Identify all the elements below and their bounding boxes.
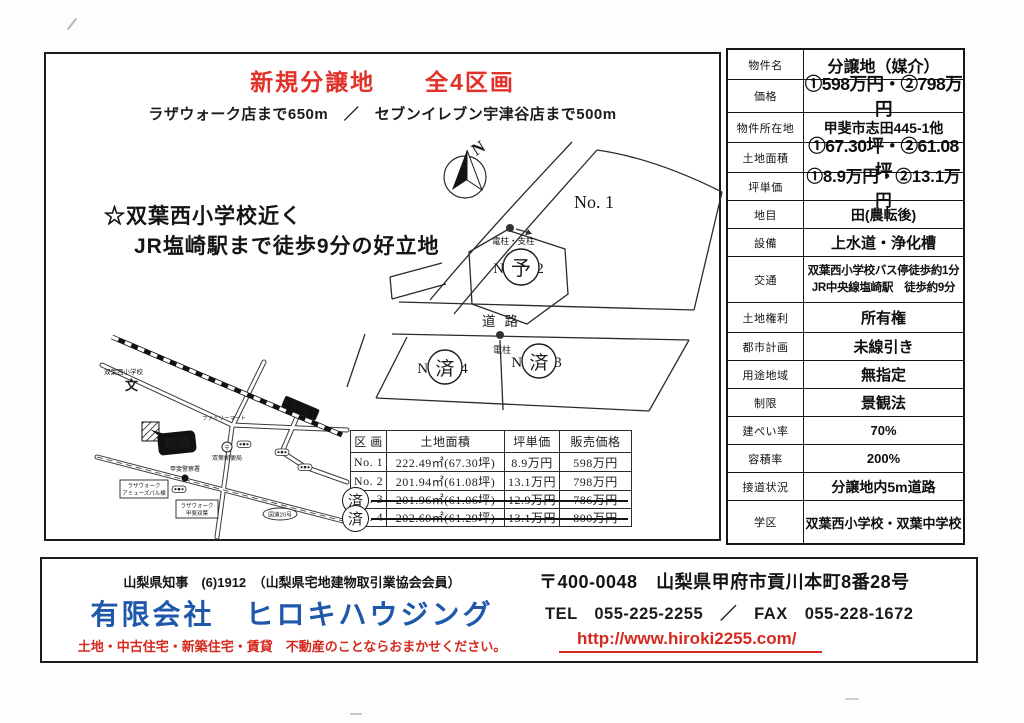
price-table-row-sold: 済 No. 4 202.60㎡(61.29坪) 13.1万円 800万円 [351,508,631,526]
spec-label: 設備 [728,229,804,256]
site-label: 現地 [163,435,190,453]
spec-label: 物件名 [728,50,804,79]
svg-text:アミューズパル棟: アミューズパル棟 [122,489,166,497]
company-footer: 山梨県知事 (6)1912 （山梨県宅地建物取引業協会会員） 有限会社 ヒロキハ… [40,557,978,663]
spec-value: 双葉西小学校バス停徒歩約1分 JR中央線塩崎駅 徒歩約9分 [804,257,963,302]
pole-support-label: 電柱・支柱 [492,236,535,246]
price-table-row: No. 2 201.94㎡(61.08坪) 13.1万円 798万円 [351,471,631,490]
col-header-area: 土地面積 [387,431,505,452]
lot-boundary [597,150,722,192]
spec-value: 未線引き [804,333,963,360]
price-table-row-sold: 済 No. 3 201.96㎡(61.06坪) 12.9万円 786万円 [351,490,631,508]
spec-value: 双葉西小学校・双葉中学校 [804,501,963,543]
lot-price: 598万円 [560,453,631,471]
road-line [390,277,392,299]
scan-artifact [845,698,859,700]
lot-boundary [649,340,689,411]
spec-label: 容積率 [728,445,804,472]
svg-text:ラザウォーク: ラザウォーク [127,482,160,490]
spec-value: 景観法 [804,389,963,416]
scan-artifact [350,713,362,715]
police-label: 甲斐警察署 [170,465,200,473]
route20-badge: 国道20号 [263,508,297,520]
scan-artifact [67,18,77,30]
lot-area: 201.94㎡(61.08坪) [387,472,505,490]
spec-value: ①598万円・②798万円 [804,80,963,112]
spec-label: 土地権利 [728,303,804,332]
spec-label: 交通 [728,257,804,302]
spec-value: 上水道・浄化槽 [804,229,963,256]
road-line [376,337,407,398]
spec-value: 田(農転後) [804,201,963,228]
distance-subtitle: ラザウォーク店まで650m ／ セブンイレブン宇津谷店まで500m [46,103,719,124]
vicinity-map: 塩崎駅 双葉西小学校 文 現地 ファミリーマート 〒 双葉郵便局 甲斐警察署 [92,332,354,541]
lot-unit-price: 8.9万円 [505,453,560,471]
spec-label: 土地面積 [728,143,804,172]
spec-label: 物件所在地 [728,113,804,142]
lot2-stamp: 予 [511,258,531,280]
sold-strike-line [371,500,628,502]
lot4-stamp: 済 [435,358,454,380]
spec-value: ①8.9万円・②13.1万円 [804,173,963,200]
lot-price: 798万円 [560,472,631,490]
post-office-label: 双葉郵便局 [212,454,242,462]
spec-value: 分譲地内5m道路 [804,473,963,500]
property-spec-table: 物件名分譲地（媒介） 価格①598万円・②798万円 物件所在地甲斐市志田445… [726,48,965,545]
spec-label: 建ぺい率 [728,417,804,444]
flyer-title: 新規分譲地 全4区画 [46,63,719,97]
lot-boundary [376,398,649,411]
spec-value: 所有権 [804,303,963,332]
company-tagline: 土地・中古住宅・新築住宅・賃貸 不動産のことならおまかせください。 [47,636,537,655]
company-url: http://www.hiroki2255.com/ [559,629,822,653]
spec-label: 制限 [728,389,804,416]
familymart-label: ファミリーマート [202,415,246,422]
svg-text:国道20号: 国道20号 [268,511,292,519]
sold-strike-line [371,518,628,520]
spec-label: 都市計画 [728,333,804,360]
spec-label: 学区 [728,501,804,543]
north-label: N [468,136,489,159]
road-line [392,334,689,340]
svg-text:〒: 〒 [224,445,231,452]
lot-area: 222.49㎡(67.30坪) [387,453,505,471]
site-plan-drawing: N 電柱・支柱 電柱 No. 1 道路 No.2 予 No.4 済 No.3 済 [342,132,727,422]
road-line [390,263,442,277]
price-table-row: No. 1 222.49㎡(67.30坪) 8.9万円 598万円 [351,452,631,471]
flyer-page: 新規分譲地 全4区画 ラザウォーク店まで650m ／ セブンイレブン宇津谷店まで… [0,0,1024,723]
road-label: 道路 [482,314,527,329]
sold-stamp: 済 [342,505,369,532]
spec-value: 200% [804,445,963,472]
lot-boundary [694,192,722,310]
school-label: 双葉西小学校 [104,367,144,376]
pole-label: 電柱 [493,344,511,355]
spec-label: 用途地域 [728,361,804,388]
spec-value: 無指定 [804,361,963,388]
col-header-lot: 区 画 [351,431,387,452]
lazawalk-annex-box: ラザウォーク アミューズパル棟 [120,480,168,498]
road-line [399,302,694,310]
license-text: 山梨県知事 (6)1912 （山梨県宅地建物取引業協会会員） [62,572,522,591]
svg-text:ラザウォーク: ラザウォーク [180,502,213,510]
svg-text:甲斐双葉: 甲斐双葉 [186,509,209,517]
spec-label: 坪単価 [728,173,804,200]
company-address: 〒400-0048 山梨県甲府市貢川本町8番28号 [539,568,910,594]
col-header-unit: 坪単価 [505,431,560,452]
price-table-header: 区 画 土地面積 坪単価 販売価格 [351,431,631,452]
utility-pole-icon [506,224,514,232]
tel-fax: TEL 055-225-2255 ／ FAX 055-228-1672 [545,600,913,624]
main-content-box: 新規分譲地 全4区画 ラザウォーク店まで650m ／ セブンイレブン宇津谷店まで… [44,52,721,541]
spec-label: 接道状況 [728,473,804,500]
col-header-price: 販売価格 [560,431,631,452]
lazawalk-main-box: ラザウォーク 甲斐双葉 [176,500,218,518]
company-name: 有限会社 ヒロキハウジング [52,593,532,633]
utility-pole-icon [496,331,504,339]
lot-unit-price: 13.1万円 [505,472,560,490]
school-symbol-icon: 文 [125,378,139,393]
price-table: 区 画 土地面積 坪単価 販売価格 No. 1 222.49㎡(67.30坪) … [350,430,632,527]
spec-label: 価格 [728,80,804,112]
lot-no: No. 1 [351,453,387,471]
lot1-label: No. 1 [574,192,614,212]
post-office-icon: 〒 [222,442,232,452]
spec-label: 地目 [728,201,804,228]
lot3-stamp: 済 [529,352,548,374]
north-compass: N [444,136,489,198]
police-dot-icon [182,475,189,482]
spec-value: 70% [804,417,963,444]
